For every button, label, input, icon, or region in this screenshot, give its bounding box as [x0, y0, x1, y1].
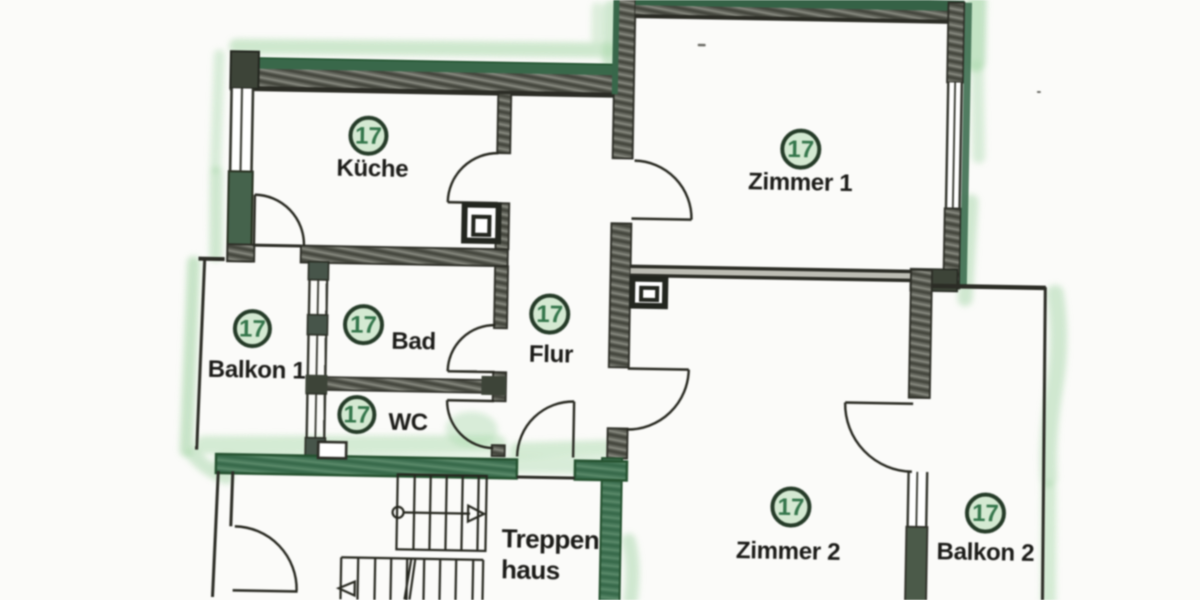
- svg-text:Treppen: Treppen: [501, 523, 599, 555]
- svg-text:Küche: Küche: [336, 155, 408, 183]
- svg-text:17: 17: [343, 401, 370, 428]
- svg-text:Zimmer 1: Zimmer 1: [748, 168, 853, 197]
- svg-text:WC: WC: [388, 409, 428, 437]
- svg-text:17: 17: [972, 500, 999, 527]
- svg-text:Bad: Bad: [391, 328, 436, 356]
- svg-text:Flur: Flur: [529, 341, 574, 369]
- svg-text:haus: haus: [501, 554, 560, 585]
- svg-text:17: 17: [355, 122, 382, 149]
- svg-text:17: 17: [239, 315, 266, 342]
- svg-text:17: 17: [536, 301, 563, 328]
- svg-text:17: 17: [350, 311, 377, 338]
- svg-text:Zimmer 2: Zimmer 2: [736, 537, 841, 566]
- svg-text:Balkon 2: Balkon 2: [936, 538, 1034, 567]
- svg-text:17: 17: [787, 136, 814, 163]
- svg-text:Balkon 1: Balkon 1: [208, 356, 306, 385]
- svg-text:17: 17: [777, 494, 804, 521]
